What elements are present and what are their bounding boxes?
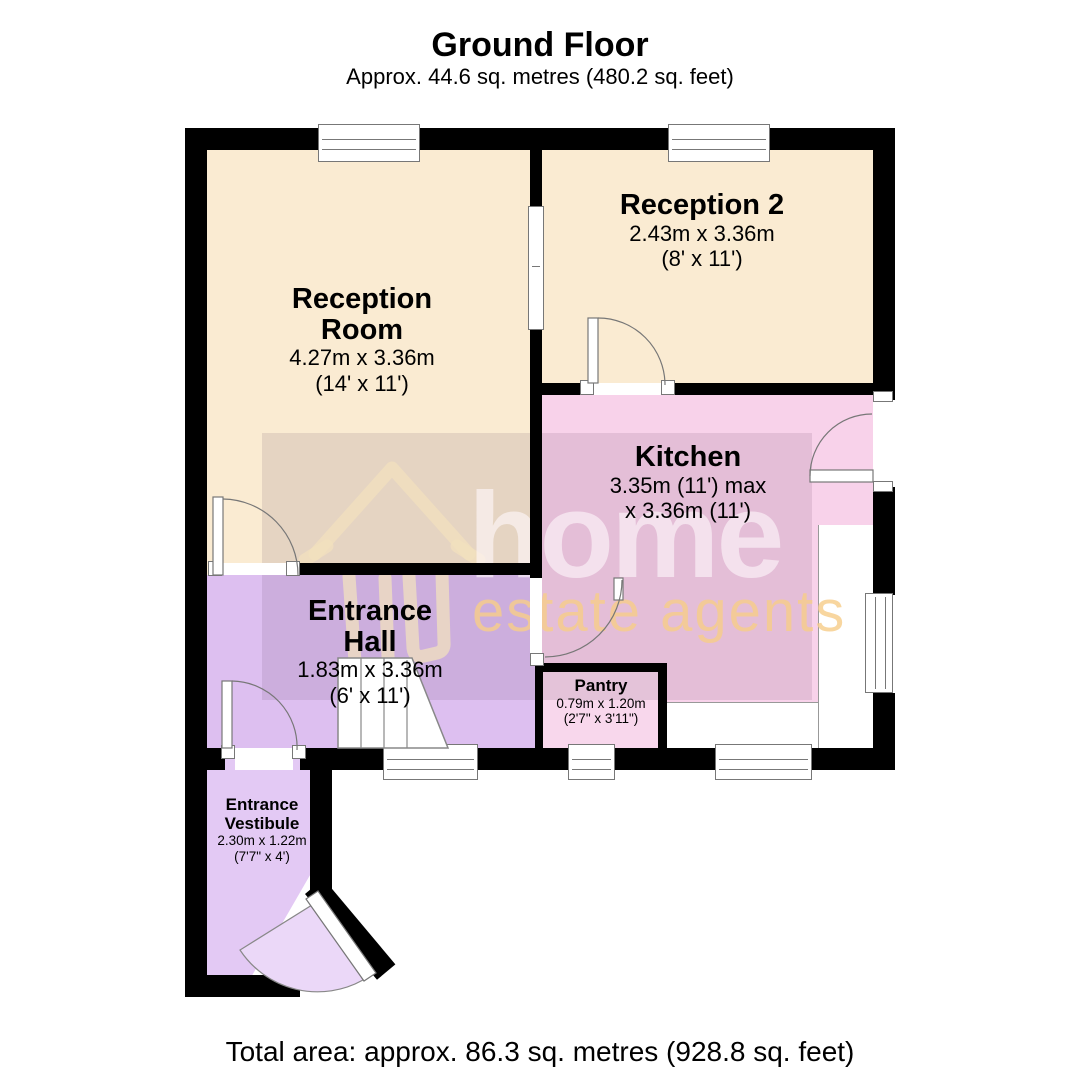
door-gap-kitchen-right bbox=[873, 402, 895, 482]
door-jamb bbox=[873, 391, 893, 402]
door-jamb bbox=[292, 745, 306, 759]
window-right-kitchen bbox=[865, 593, 893, 693]
door-jamb bbox=[580, 380, 594, 395]
door-gap-hall-reception bbox=[222, 563, 288, 575]
wall-reception-room-bottom bbox=[300, 563, 542, 575]
room-label-kitchen: Kitchen 3.35m (11') max x 3.36m (11') bbox=[610, 442, 767, 523]
wall-vestibule-bottom bbox=[185, 975, 300, 997]
room-label-entrance-hall: Entrance Hall 1.83m x 3.36m (6' x 11') bbox=[297, 596, 443, 708]
wall-left bbox=[185, 128, 207, 997]
window-bottom-kitchen bbox=[715, 744, 812, 780]
wall-bottom-seg2 bbox=[300, 748, 383, 770]
door-jamb bbox=[208, 561, 222, 576]
door-jamb bbox=[286, 561, 300, 576]
door-jamb bbox=[221, 745, 235, 759]
wall-pantry-top bbox=[535, 663, 667, 672]
window-bottom-pantry bbox=[568, 744, 615, 780]
wall-reception2-bottom-left bbox=[530, 383, 582, 395]
window-top-reception-2 bbox=[668, 124, 770, 162]
wall-bottom-seg3 bbox=[478, 748, 568, 770]
door-gap-vestibule-hall bbox=[235, 748, 293, 770]
wall-reception2-bottom-right bbox=[675, 383, 873, 395]
wall-right-upper bbox=[873, 128, 895, 400]
door-jamb bbox=[530, 653, 544, 666]
wall-top bbox=[185, 128, 895, 150]
wall-vestibule-chamfer bbox=[305, 879, 395, 980]
home-logo-tagline-text: estate agents bbox=[472, 583, 846, 641]
room-label-pantry: Pantry 0.79m x 1.20m (2'7" x 3'11") bbox=[556, 677, 645, 727]
kitchen-unassigned-floor-bottom bbox=[667, 702, 818, 748]
page-title: Ground Floor bbox=[0, 26, 1080, 65]
wall-right-mid bbox=[873, 487, 895, 595]
wall-pantry-left bbox=[535, 672, 543, 748]
entrance-vestibule-fill bbox=[207, 758, 310, 975]
room-label-reception-room: Reception Room 4.27m x 3.36m (14' x 11') bbox=[289, 284, 435, 396]
internal-window-divider bbox=[528, 206, 544, 330]
total-area-text: Total area: approx. 86.3 sq. metres (928… bbox=[0, 1036, 1080, 1068]
window-bottom-hall bbox=[383, 744, 478, 780]
wall-bottom-seg4 bbox=[615, 748, 715, 770]
floor-area-subtitle: Approx. 44.6 sq. metres (480.2 sq. feet) bbox=[0, 64, 1080, 90]
wall-pantry-right bbox=[658, 663, 667, 748]
wall-bottom-seg5 bbox=[812, 748, 895, 770]
door-gap-reception2-kitchen bbox=[582, 383, 663, 395]
window-top-reception-room bbox=[318, 124, 420, 162]
room-label-reception-2: Reception 2 2.43m x 3.36m (8' x 11') bbox=[620, 190, 784, 271]
room-label-entrance-vestibule: Entrance Vestibule 2.30m x 1.22m (7'7" x… bbox=[217, 796, 306, 864]
floorplan-page: Ground Floor Approx. 44.6 sq. metres (48… bbox=[0, 0, 1080, 1080]
door-gap-hall-kitchen bbox=[530, 578, 542, 655]
door-jamb bbox=[873, 481, 893, 492]
floorplan-drawing: home estate agents bbox=[185, 128, 895, 1000]
reception-2-fill bbox=[535, 150, 873, 395]
door-jamb bbox=[661, 380, 675, 395]
